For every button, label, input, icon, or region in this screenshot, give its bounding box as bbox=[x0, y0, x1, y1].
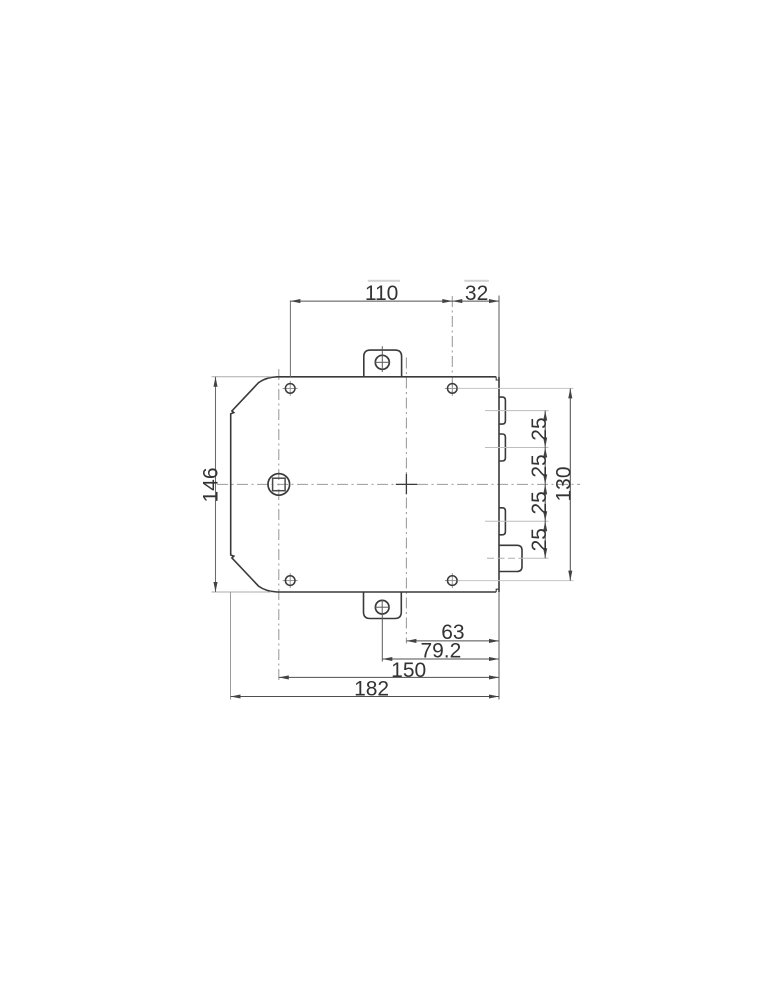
svg-text:110: 110 bbox=[365, 282, 398, 305]
svg-text:25: 25 bbox=[528, 528, 551, 551]
svg-text:25: 25 bbox=[528, 454, 551, 477]
svg-text:32: 32 bbox=[465, 282, 488, 305]
svg-text:130: 130 bbox=[552, 466, 575, 501]
svg-text:79.2: 79.2 bbox=[420, 640, 461, 663]
svg-text:182: 182 bbox=[354, 677, 389, 700]
svg-text:25: 25 bbox=[528, 417, 551, 440]
svg-text:150: 150 bbox=[391, 659, 426, 682]
svg-text:25: 25 bbox=[528, 491, 551, 514]
svg-text:146: 146 bbox=[199, 467, 222, 502]
